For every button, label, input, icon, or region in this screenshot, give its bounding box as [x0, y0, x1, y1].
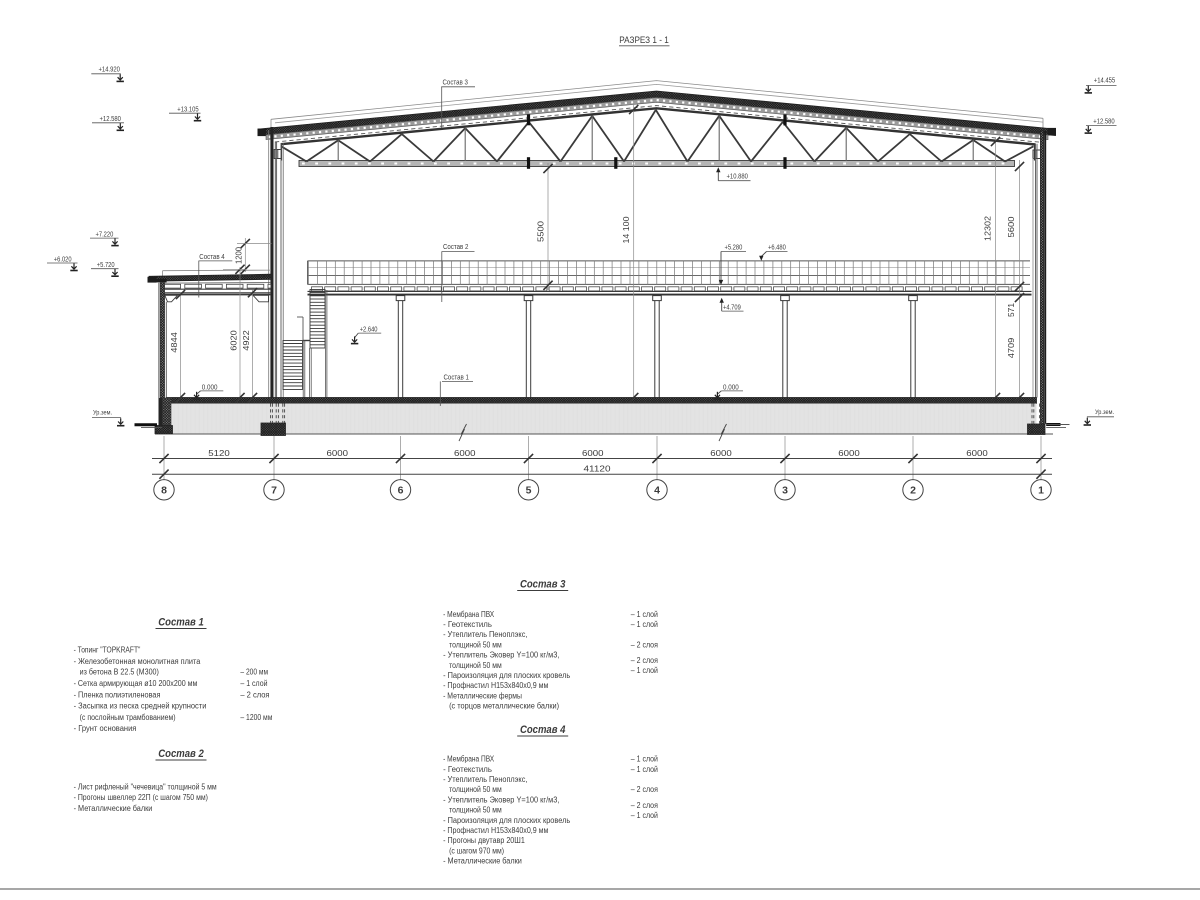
- svg-text:+13.105: +13.105: [177, 106, 198, 113]
- svg-text:2: 2: [910, 485, 916, 497]
- svg-text:4844: 4844: [169, 332, 179, 353]
- svg-text:4709: 4709: [1006, 337, 1016, 358]
- svg-text:Ур.зем.: Ур.зем.: [93, 410, 112, 417]
- svg-text:- Профнастил Н153х840х0,9 мм: - Профнастил Н153х840х0,9 мм: [443, 826, 548, 835]
- svg-text:- Пароизоляция для плоских кро: - Пароизоляция для плоских кровель: [443, 816, 570, 825]
- svg-text:41120: 41120: [584, 464, 611, 474]
- svg-text:+14.920: +14.920: [99, 67, 120, 74]
- svg-text:- Металлические балки: - Металлические балки: [74, 804, 153, 813]
- svg-text:– 2 слоя: – 2 слоя: [631, 801, 658, 810]
- svg-text:– 2 слоя: – 2 слоя: [631, 640, 658, 649]
- svg-text:- Утеплитель Пеноплэкс,: - Утеплитель Пеноплэкс,: [443, 630, 527, 639]
- svg-text:+7.220: +7.220: [96, 231, 114, 238]
- svg-text:0.000: 0.000: [202, 384, 218, 391]
- svg-text:+12.580: +12.580: [100, 116, 121, 123]
- svg-text:5600: 5600: [1006, 216, 1016, 237]
- svg-text:– 2 слоя: – 2 слоя: [631, 656, 658, 665]
- svg-text:+4.709: +4.709: [723, 304, 741, 311]
- svg-text:6000: 6000: [838, 448, 860, 458]
- svg-text:7: 7: [271, 485, 277, 497]
- svg-text:+12.580: +12.580: [1093, 118, 1114, 125]
- svg-text:– 2 слоя: – 2 слоя: [631, 785, 658, 794]
- svg-text:+5.720: +5.720: [97, 262, 115, 269]
- svg-text:– 1 слой: – 1 слой: [240, 679, 267, 688]
- svg-text:- Прогоны швеллер 22П (с шагом: - Прогоны швеллер 22П (с шагом 750 мм): [74, 793, 209, 802]
- svg-text:14 100: 14 100: [621, 216, 631, 243]
- svg-text:Состав 3: Состав 3: [443, 80, 468, 87]
- svg-text:из бетона В 22.5 (М300): из бетона В 22.5 (М300): [80, 668, 160, 677]
- svg-text:8: 8: [161, 485, 167, 497]
- svg-text:Состав 4: Состав 4: [520, 724, 566, 736]
- svg-text:толщиной 50 мм: толщиной 50 мм: [449, 640, 502, 649]
- svg-text:6000: 6000: [966, 448, 988, 458]
- svg-text:- Прогоны двутавр 20Ш1: - Прогоны двутавр 20Ш1: [443, 836, 525, 845]
- svg-text:Состав 1: Состав 1: [444, 375, 469, 382]
- svg-text:5: 5: [526, 485, 532, 497]
- svg-text:Состав 4: Состав 4: [199, 254, 224, 261]
- svg-text:4: 4: [654, 485, 660, 497]
- svg-text:- Мембрана ПВХ: - Мембрана ПВХ: [443, 610, 495, 619]
- svg-text:Состав 3: Состав 3: [520, 579, 566, 591]
- svg-text:– 1 слой: – 1 слой: [631, 620, 658, 629]
- svg-text:– 1 слой: – 1 слой: [631, 765, 658, 774]
- svg-text:+2.640: +2.640: [360, 326, 378, 333]
- svg-text:- Профнастил Н153х840х0,9 мм: - Профнастил Н153х840х0,9 мм: [443, 681, 548, 690]
- svg-text:– 1 слой: – 1 слой: [631, 666, 658, 675]
- svg-text:1200: 1200: [234, 247, 244, 264]
- svg-text:+6.480: +6.480: [768, 245, 786, 252]
- svg-text:(с шагом 970 мм): (с шагом 970 мм): [449, 846, 504, 855]
- svg-text:+14.455: +14.455: [1094, 77, 1115, 84]
- svg-text:- Пароизоляция для плоских кро: - Пароизоляция для плоских кровель: [443, 671, 570, 680]
- svg-text:- Пленка полиэтиленовая: - Пленка полиэтиленовая: [74, 690, 161, 699]
- svg-text:12302: 12302: [983, 216, 993, 241]
- svg-text:5120: 5120: [208, 448, 230, 458]
- svg-text:- Мембрана ПВХ: - Мембрана ПВХ: [443, 755, 495, 764]
- svg-text:- Топинг "TOPKRAFT": - Топинг "TOPKRAFT": [74, 646, 141, 655]
- svg-text:Состав 2: Состав 2: [443, 244, 468, 251]
- svg-text:- Утеплитель Эковер Y=100 кг/м: - Утеплитель Эковер Y=100 кг/м3,: [443, 795, 559, 804]
- svg-text:Состав 1: Состав 1: [158, 617, 204, 629]
- svg-text:- Геотекстиль: - Геотекстиль: [443, 620, 492, 629]
- svg-text:Состав 2: Состав 2: [158, 748, 204, 760]
- svg-text:4922: 4922: [241, 330, 251, 351]
- svg-text:толщиной 50 мм: толщиной 50 мм: [449, 785, 502, 794]
- svg-text:- Засыпка из песка средней кру: - Засыпка из песка средней крупности: [74, 702, 207, 711]
- svg-text:6000: 6000: [454, 448, 476, 458]
- svg-text:- Лист рифленый "чечевица" тол: - Лист рифленый "чечевица" толщиной 5 мм: [74, 782, 217, 791]
- svg-text:5500: 5500: [536, 221, 546, 242]
- svg-text:– 1200 мм: – 1200 мм: [240, 713, 272, 722]
- svg-text:+6.020: +6.020: [54, 256, 72, 263]
- svg-text:+10.880: +10.880: [727, 174, 748, 181]
- svg-text:1: 1: [1038, 485, 1044, 497]
- svg-text:- Утеплитель Пеноплэкс,: - Утеплитель Пеноплэкс,: [443, 775, 527, 784]
- svg-text:- Металлические фермы: - Металлические фермы: [443, 691, 522, 700]
- svg-text:+5.280: +5.280: [725, 245, 743, 252]
- svg-text:- Грунт основания: - Грунт основания: [74, 724, 137, 733]
- svg-text:Ур.зем.: Ур.зем.: [1095, 409, 1114, 416]
- svg-text:(с торцов металлические балки): (с торцов металлические балки): [449, 702, 559, 711]
- svg-text:571: 571: [1006, 303, 1016, 317]
- svg-text:– 1 слой: – 1 слой: [631, 610, 658, 619]
- svg-text:РАЗРЕЗ 1 - 1: РАЗРЕЗ 1 - 1: [619, 35, 669, 46]
- svg-text:(с послойным трамбованием): (с послойным трамбованием): [80, 713, 176, 722]
- svg-text:- Железобетонная монолитная п: - Железобетонная монолитная плита: [74, 657, 201, 666]
- svg-text:- Металлические балки: - Металлические балки: [443, 857, 522, 866]
- svg-text:– 200 мм: – 200 мм: [240, 668, 268, 677]
- svg-text:3: 3: [782, 485, 788, 497]
- svg-text:- Утеплитель Эковер Y=100 кг/м: - Утеплитель Эковер Y=100 кг/м3,: [443, 651, 559, 660]
- svg-text:6020: 6020: [229, 330, 239, 351]
- svg-text:– 2 слоя: – 2 слоя: [240, 690, 269, 699]
- svg-text:- Геотекстиль: - Геотекстиль: [443, 765, 492, 774]
- svg-text:6: 6: [398, 485, 404, 497]
- svg-text:- Сетка армирующая ø10 200х200: - Сетка армирующая ø10 200х200 мм: [74, 679, 198, 688]
- svg-text:6000: 6000: [710, 448, 732, 458]
- svg-text:– 1 слой: – 1 слой: [631, 755, 658, 764]
- svg-text:– 1 слой: – 1 слой: [631, 811, 658, 820]
- svg-text:толщиной 50 мм: толщиной 50 мм: [449, 661, 502, 670]
- svg-text:0.000: 0.000: [723, 384, 739, 391]
- svg-text:6000: 6000: [582, 448, 604, 458]
- svg-text:толщиной 50 мм: толщиной 50 мм: [449, 806, 502, 815]
- svg-text:6000: 6000: [327, 448, 349, 458]
